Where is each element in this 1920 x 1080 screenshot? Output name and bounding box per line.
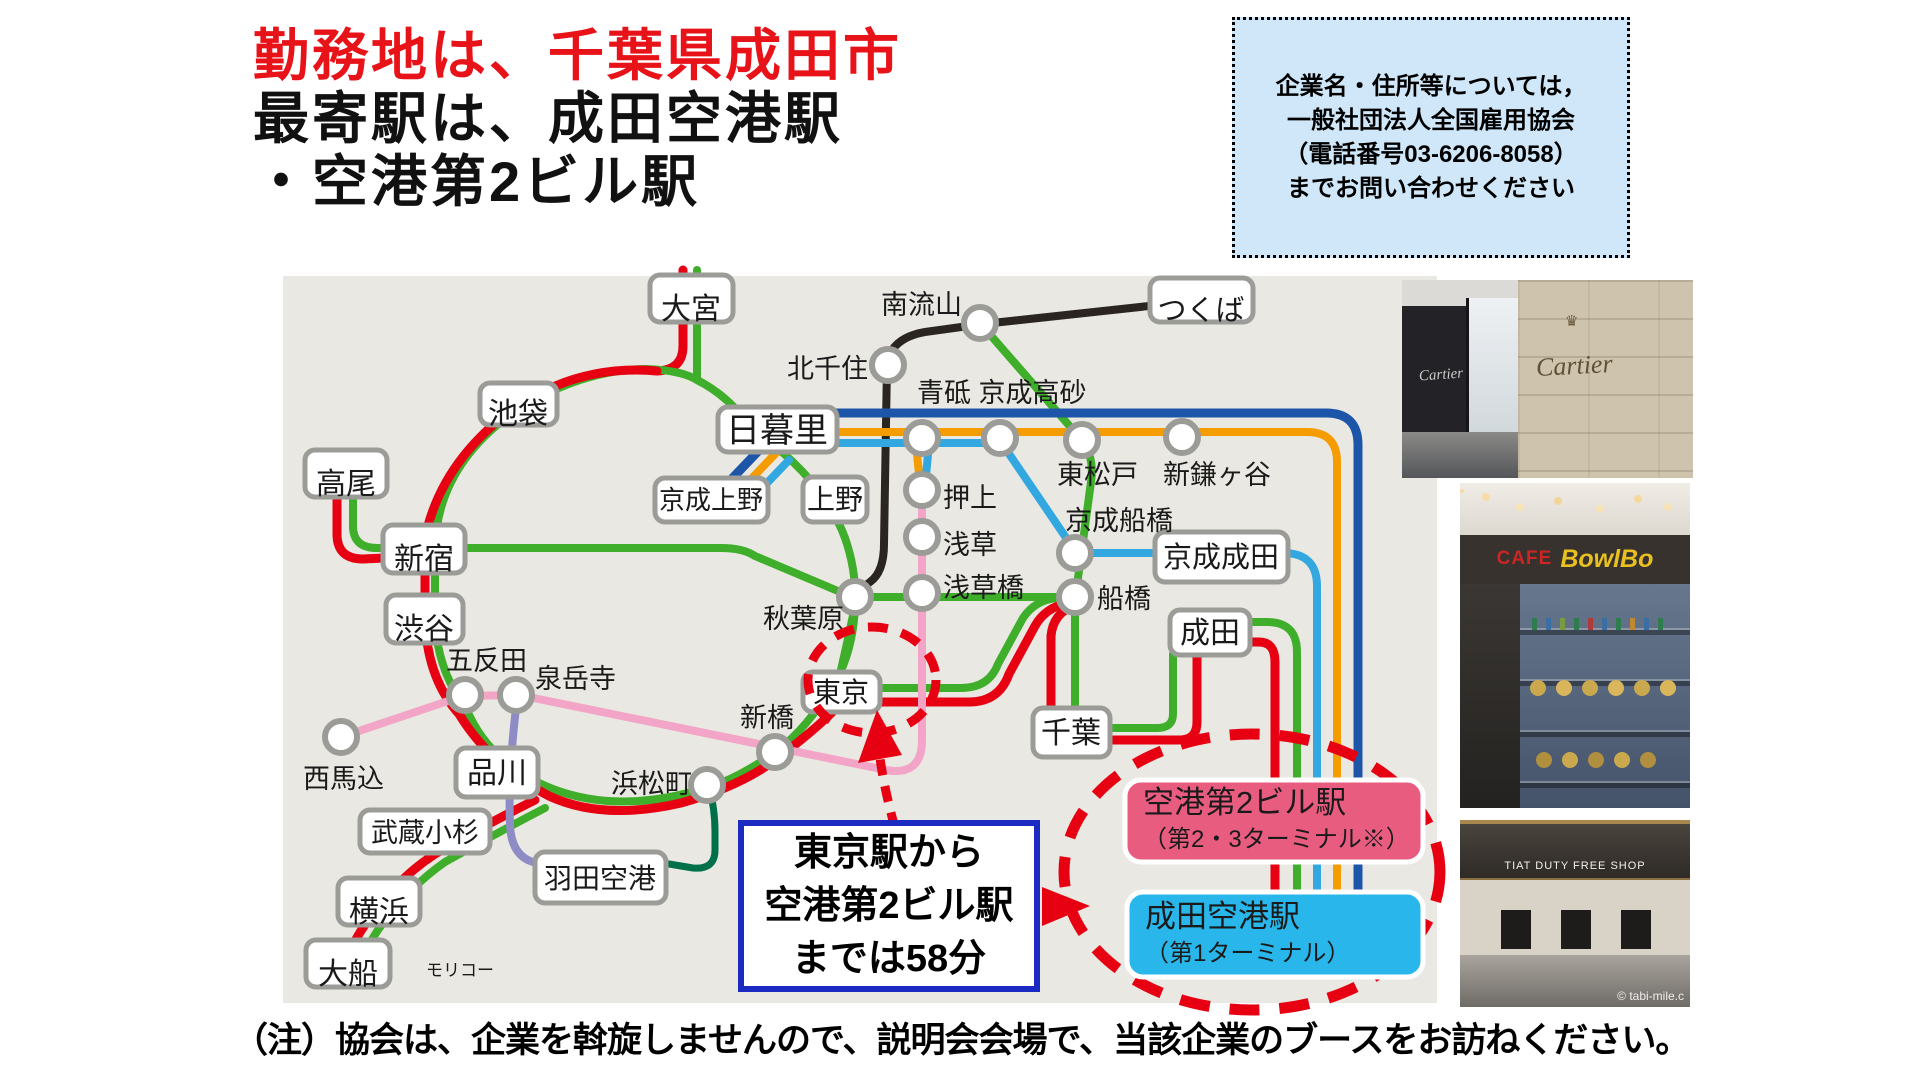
station-label-haneda: 羽田空港 [535, 852, 666, 903]
cartier-display-window [1466, 298, 1521, 445]
station-name-akihabara: 秋葉原 [763, 604, 844, 634]
callout-line2: 空港第2ビル駅 [764, 880, 1013, 933]
arrow-right-icon [1042, 887, 1090, 926]
station-label-shinagawa: 品川 [456, 748, 538, 797]
photo-tiat-duty-free: TIAT DUTY FREE SHOP © tabi-mile.c [1460, 820, 1690, 1007]
svg-text:横浜: 横浜 [349, 896, 409, 929]
station-label-yokohama: 横浜 [338, 878, 420, 929]
cafe-sign-bowl: BowlBo [1560, 545, 1653, 574]
station-label-tokyo: 東京 [803, 672, 880, 712]
station-name-hamamatsucho: 浜松町 [611, 769, 692, 799]
svg-text:新宿: 新宿 [394, 543, 454, 576]
contact-info-box: 企業名・住所等については， 一般社団法人全国雇用協会 （電話番号03-6206-… [1232, 17, 1630, 258]
map-watermark: モリコー [426, 961, 494, 980]
svg-text:成田: 成田 [1180, 617, 1240, 650]
station-dot-hamamatsucho [691, 769, 723, 801]
cafe-sign-cafe: CAFE [1497, 548, 1553, 570]
station-name-funabashi: 船橋 [1097, 584, 1151, 614]
station-dot-keisei-funabashi [1059, 537, 1091, 569]
terminal1-box: 成田空港駅 （第1ターミナル） [1127, 892, 1423, 977]
svg-text:千葉: 千葉 [1041, 717, 1101, 750]
cafe-ceiling-lights [1460, 489, 1464, 493]
station-label-ofuna: 大船 [306, 940, 390, 991]
station-dot-higashi-matsudo [1066, 424, 1098, 456]
cafe-sign: CAFE BowlBo [1460, 535, 1690, 584]
svg-text:羽田空港: 羽田空港 [544, 863, 656, 894]
station-dot-shin-kamagaya [1166, 421, 1198, 453]
station-label-takao: 高尾 [305, 450, 387, 501]
terminal1-title: 成田空港駅 [1145, 899, 1300, 934]
station-label-nippori: 日暮里 [718, 407, 837, 452]
station-dot-oshiage [906, 474, 938, 506]
station-name-nishi-magome: 西馬込 [303, 764, 384, 794]
station-dot-sengakuji [500, 679, 532, 711]
title-line-station: 最寄駅は、成田空港駅 [253, 87, 902, 150]
terminal2-subtitle: （第2・3ターミナル※） [1143, 826, 1410, 853]
terminal1-subtitle: （第1ターミナル） [1145, 940, 1350, 967]
station-label-tsukuba: つくば [1150, 278, 1253, 327]
station-dot-shimbashi [759, 736, 791, 768]
station-dot-asakusa [906, 521, 938, 553]
svg-text:品川: 品川 [467, 757, 527, 790]
title-line-workplace: 勤務地は、千葉県成田市 [253, 24, 902, 87]
station-dot-gotanda [449, 679, 481, 711]
cartier-sign-right: Cartier [1535, 349, 1613, 383]
svg-text:日暮里: 日暮里 [726, 412, 828, 450]
station-label-chiba: 千葉 [1033, 708, 1110, 757]
station-name-keisei-funabashi: 京成船橋 [1065, 506, 1173, 536]
station-label-keisei-ueno: 京成上野 [655, 478, 768, 522]
station-name-asakusa: 浅草 [943, 530, 997, 560]
station-dot-keisei-takasago [984, 422, 1016, 454]
contact-line3: （電話番号03-6206-8058） [1284, 138, 1577, 172]
cafe-shelf-lines [1520, 584, 1690, 808]
station-label-keisei-narita: 京成成田 [1155, 532, 1288, 582]
callout-line3: までは58分 [792, 933, 986, 986]
svg-text:高尾: 高尾 [316, 468, 376, 501]
cartier-floor [1402, 432, 1518, 478]
dutyfree-interior [1460, 880, 1690, 955]
station-name-aoto-takasago: 青砥 京成高砂 [917, 378, 1087, 408]
travel-time-callout: 東京駅から 空港第2ビル駅 までは58分 [738, 820, 1040, 992]
dutyfree-counter [1621, 910, 1651, 949]
crown-icon: ♛ [1565, 312, 1578, 330]
dutyfree-counter [1501, 910, 1531, 949]
station-dot-aoto [906, 422, 938, 454]
station-label-ueno: 上野 [803, 477, 867, 522]
station-name-shin-kamagaya: 新鎌ヶ谷 [1163, 460, 1271, 490]
svg-text:大宮: 大宮 [661, 293, 721, 326]
station-name-kita-senju: 北千住 [787, 354, 868, 384]
station-label-omiya: 大宮 [650, 275, 733, 326]
line-keisei-lightblue-diag [1001, 442, 1073, 548]
cafe-bottles [1532, 618, 1537, 630]
station-name-higashi-matsudo: 東松戸 [1057, 460, 1138, 490]
station-label-shibuya: 渋谷 [386, 595, 463, 646]
line-green-takao [353, 497, 377, 548]
station-dot-nishi-magome [325, 721, 357, 753]
svg-text:池袋: 池袋 [488, 398, 548, 431]
station-name-asakusabashi: 浅草橋 [943, 573, 1024, 603]
contact-line1: 企業名・住所等については， [1276, 70, 1587, 104]
cafe-dark-area [1460, 584, 1520, 808]
svg-text:上野: 上野 [807, 484, 863, 515]
terminal2-box: 空港第2ビル駅 （第2・3ターミナル※） [1125, 780, 1423, 862]
svg-text:渋谷: 渋谷 [394, 613, 454, 646]
arrowhead-up-icon [858, 710, 902, 763]
station-name-shimbashi: 新橋 [740, 703, 794, 733]
dutyfree-sign: TIAT DUTY FREE SHOP [1504, 860, 1645, 872]
photo-cartier-storefront: Cartier ♛ Cartier [1402, 280, 1693, 478]
cafe-food-plates [1530, 680, 1546, 696]
svg-text:つくば: つくば [1157, 295, 1244, 327]
cafe-shelves [1520, 584, 1690, 808]
svg-text:武蔵小杉: 武蔵小杉 [371, 818, 479, 848]
title-line-terminal: ・空港第2ビル駅 [253, 150, 902, 213]
terminal2-title: 空港第2ビル駅 [1143, 785, 1346, 820]
contact-line4: までお問い合わせください [1287, 172, 1575, 206]
svg-text:京成上野: 京成上野 [659, 485, 763, 515]
svg-text:京成成田: 京成成田 [1163, 541, 1279, 574]
station-label-musashi-kosugi: 武蔵小杉 [360, 810, 490, 853]
page-title: 勤務地は、千葉県成田市 最寄駅は、成田空港駅 ・空港第2ビル駅 [253, 24, 902, 213]
station-name-oshiage: 押上 [943, 483, 997, 513]
station-dot-asakusabashi [906, 577, 938, 609]
station-dot-minami-nagareyama [964, 307, 996, 339]
footer-note: （注）協会は、企業を斡旋しませんので、説明会会場で、当該企業のブースをお訪ねくだ… [233, 1012, 1793, 1063]
cartier-sign-left: Cartier [1419, 366, 1464, 386]
dutyfree-counter [1561, 910, 1591, 949]
station-name-gotanda: 五反田 [446, 646, 527, 676]
station-dot-funabashi [1059, 581, 1091, 613]
station-label-ikebukuro: 池袋 [480, 383, 557, 431]
photo-cafe-bowlbowl: CAFE BowlBo [1460, 483, 1690, 808]
svg-text:大船: 大船 [318, 958, 378, 991]
station-name-sengakuji: 泉岳寺 [535, 664, 616, 694]
photo-credit-watermark: © tabi-mile.c [1617, 989, 1684, 1003]
station-dot-kita-senju [872, 349, 904, 381]
station-label-shinjuku: 新宿 [383, 525, 465, 576]
dutyfree-sign-band: TIAT DUTY FREE SHOP [1460, 820, 1690, 880]
contact-line2: 一般社団法人全国雇用協会 [1287, 104, 1575, 138]
callout-line1: 東京駅から [794, 827, 984, 880]
slide: 勤務地は、千葉県成田市 最寄駅は、成田空港駅 ・空港第2ビル駅 企業名・住所等に… [0, 0, 1920, 1080]
cafe-ceiling [1460, 483, 1690, 535]
station-name-minami-nagareyama: 南流山 [881, 290, 962, 320]
svg-text:東京: 東京 [813, 677, 869, 708]
station-label-narita: 成田 [1170, 610, 1250, 655]
